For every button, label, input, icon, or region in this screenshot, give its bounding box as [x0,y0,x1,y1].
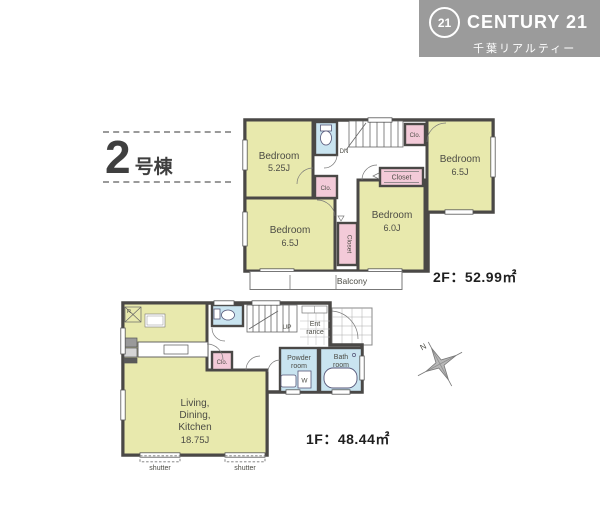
kitchen-appliances [124,338,137,363]
fridge-label: R [127,309,131,315]
2f-bedroom-65l-label: Bedroom [270,225,311,236]
1f-stairs-up-label: UP [282,324,291,331]
floor-storage-box [145,314,165,327]
balcony-label: Balcony [337,276,368,286]
2f-closet-vert-label: Closet [346,235,353,254]
shutter-label-1: shutter [149,465,171,472]
2f-clo-tr-label: Clo. [410,133,421,139]
powder-label-1: Powder [287,355,311,362]
brand-name: CENTURY 21 [467,12,588,33]
toilet-icon [214,309,235,320]
1f-area-label: 1F：48.44㎡ [306,429,390,449]
2f-bedroom-525-size: 5.25J [268,163,290,173]
unit-number: 2 [105,133,131,181]
2f-bedroom-65r-size: 6.5J [451,167,468,177]
bath-label-1: Bath [334,354,349,361]
2f-area-label: 2F：52.99㎡ [433,267,517,287]
2f-bedroom-65-right-room [427,120,493,212]
2f-bedroom-60-size: 6.0J [383,223,400,233]
floorplan-1f: R [118,298,380,476]
entrance-label-1: Ent [310,321,321,328]
2f-stairs-dn-label: DN [340,149,349,155]
2f-clo-ml-label: Clo. [321,186,332,192]
unit-number-block: 2 号棟 [103,131,231,183]
shutter-label-2: shutter [234,465,256,472]
2f-balcony: Balcony [250,272,402,290]
powder-label-2: room [291,363,307,370]
toilet-icon [321,125,332,145]
ldk-label-1: Living, [181,398,210,409]
ldk-label-3: Kitchen [178,422,211,433]
brand-subtitle: 千葉リアルティー [473,40,600,56]
compass-icon: N [412,336,468,392]
brand-banner: 21 CENTURY 21 千葉リアルティー [419,0,600,57]
2f-stairs [346,121,403,150]
2f-bedroom-65r-label: Bedroom [440,154,481,165]
1f-clo-label: Clo. [217,360,228,366]
bath-label-2: room [333,362,349,369]
ldk-size: 18.75J [181,435,210,446]
2f-bedroom-60-label: Bedroom [372,210,413,221]
2f-closet-mid-label: Closet [392,175,412,182]
sink-icon [281,375,296,387]
svg-text:N: N [419,342,429,353]
entrance-label-2: rance [306,329,324,336]
2f-bedroom-65l-size: 6.5J [281,238,298,248]
washer-label: W [301,378,308,385]
entrance-porch [330,308,372,345]
2f-bedroom-525-label: Bedroom [259,151,300,162]
floorplan-page: 21 CENTURY 21 千葉リアルティー 2 号棟 [0,0,600,519]
kitchen-counter [138,342,208,357]
century21-seal-icon: 21 [429,7,460,38]
unit-suffix: 号棟 [135,152,173,179]
ldk-label-2: Dining, [179,410,210,421]
